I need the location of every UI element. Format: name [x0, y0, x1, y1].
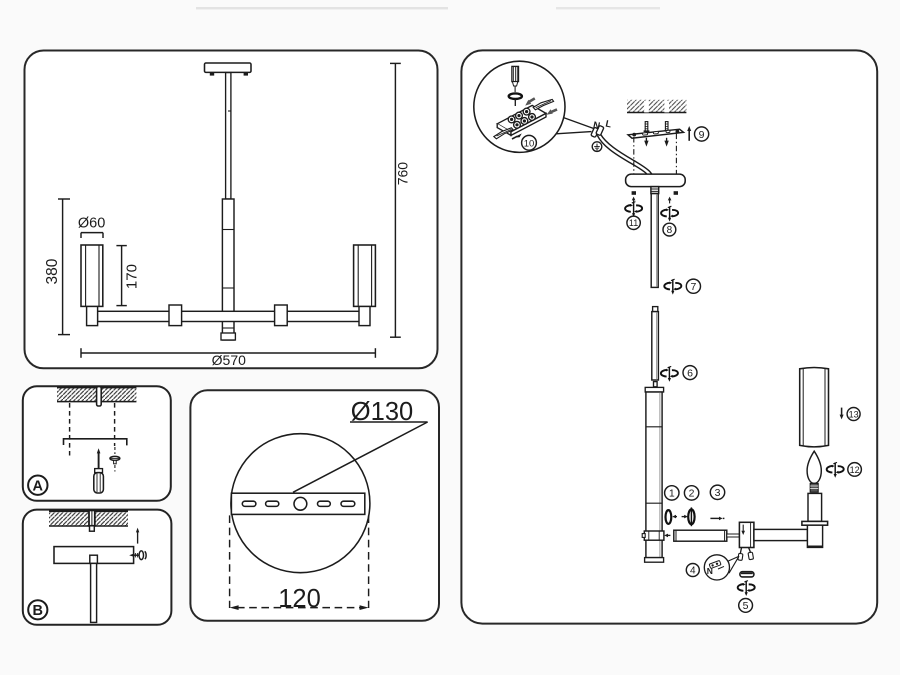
svg-text:7: 7 — [690, 281, 696, 293]
svg-text:6: 6 — [687, 367, 693, 379]
svg-text:120: 120 — [278, 585, 321, 613]
svg-text:760: 760 — [394, 162, 410, 186]
svg-text:4: 4 — [690, 566, 696, 577]
svg-text:3: 3 — [715, 487, 721, 499]
svg-text:13: 13 — [849, 409, 859, 419]
svg-text:170: 170 — [124, 264, 141, 289]
svg-text:Ø570: Ø570 — [212, 352, 246, 368]
svg-text:1: 1 — [669, 488, 675, 500]
svg-text:Ø60: Ø60 — [78, 216, 105, 232]
svg-text:11: 11 — [629, 218, 638, 228]
svg-text:10: 10 — [524, 138, 535, 149]
svg-text:380: 380 — [44, 258, 61, 284]
svg-text:8: 8 — [667, 225, 673, 236]
svg-text:A: A — [33, 478, 44, 494]
svg-text:5: 5 — [743, 600, 749, 612]
svg-text:2: 2 — [689, 488, 695, 500]
svg-text:9: 9 — [699, 129, 705, 141]
svg-text:B: B — [33, 603, 43, 619]
svg-text:12: 12 — [850, 465, 860, 475]
